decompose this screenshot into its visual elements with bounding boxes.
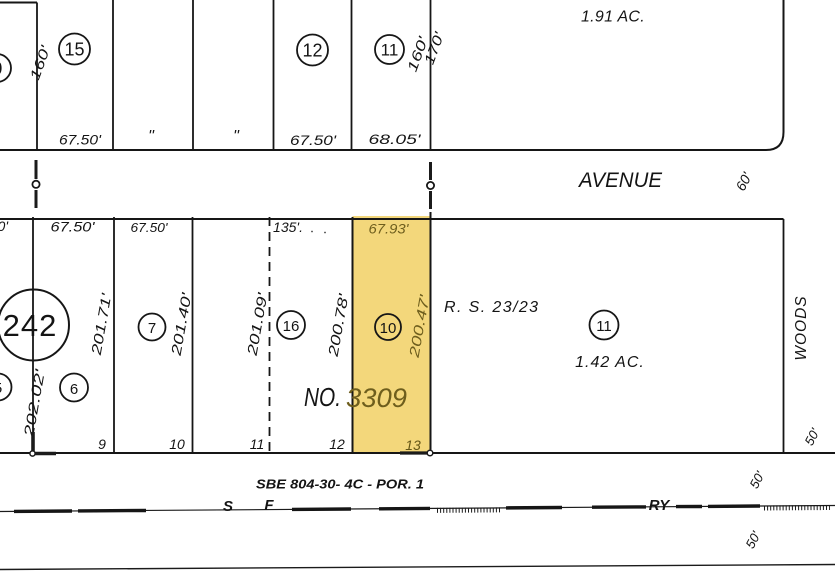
svg-text:12: 12 [329, 436, 345, 452]
svg-text:10: 10 [380, 320, 397, 337]
svg-text:9: 9 [0, 59, 2, 80]
svg-text:67.93': 67.93' [369, 221, 410, 237]
svg-text:67.50': 67.50' [59, 132, 102, 148]
svg-text:12: 12 [302, 41, 322, 61]
svg-text:11: 11 [381, 41, 399, 60]
svg-text:11: 11 [250, 436, 265, 452]
svg-text:9: 9 [98, 436, 106, 452]
svg-text:6: 6 [70, 381, 78, 398]
svg-text:F: F [264, 497, 274, 514]
svg-text:67.50': 67.50' [290, 132, 338, 148]
svg-text:15: 15 [64, 40, 84, 60]
svg-text:RY: RY [649, 497, 672, 514]
svg-text:135'.: 135'. [273, 219, 303, 235]
svg-text:R. S. 23/23: R. S. 23/23 [444, 299, 539, 316]
svg-text:WOODS: WOODS [793, 295, 810, 360]
svg-text:'': '' [148, 128, 155, 145]
svg-text:67.50': 67.50' [51, 219, 97, 235]
svg-text:NO.: NO. [304, 382, 341, 412]
svg-text:SBE 804-30- 4C - POR. 1: SBE 804-30- 4C - POR. 1 [256, 477, 424, 492]
svg-text:1.42 AC.: 1.42 AC. [575, 354, 645, 371]
svg-text:0': 0' [0, 218, 9, 234]
svg-text:16: 16 [283, 318, 300, 335]
svg-text:13: 13 [405, 437, 421, 453]
svg-text:242: 242 [3, 308, 58, 343]
svg-text:11: 11 [596, 318, 612, 335]
svg-text:7: 7 [148, 320, 156, 337]
svg-text:3309: 3309 [346, 383, 407, 413]
svg-text:1.91 AC.: 1.91 AC. [581, 9, 645, 26]
svg-text:68.05': 68.05' [369, 131, 423, 147]
svg-text:10: 10 [169, 436, 185, 452]
svg-text:'': '' [233, 128, 240, 145]
svg-text:AVENUE: AVENUE [577, 169, 663, 192]
svg-text:S: S [223, 498, 233, 515]
svg-text:67.50': 67.50' [131, 220, 169, 235]
svg-text:5: 5 [0, 380, 2, 397]
